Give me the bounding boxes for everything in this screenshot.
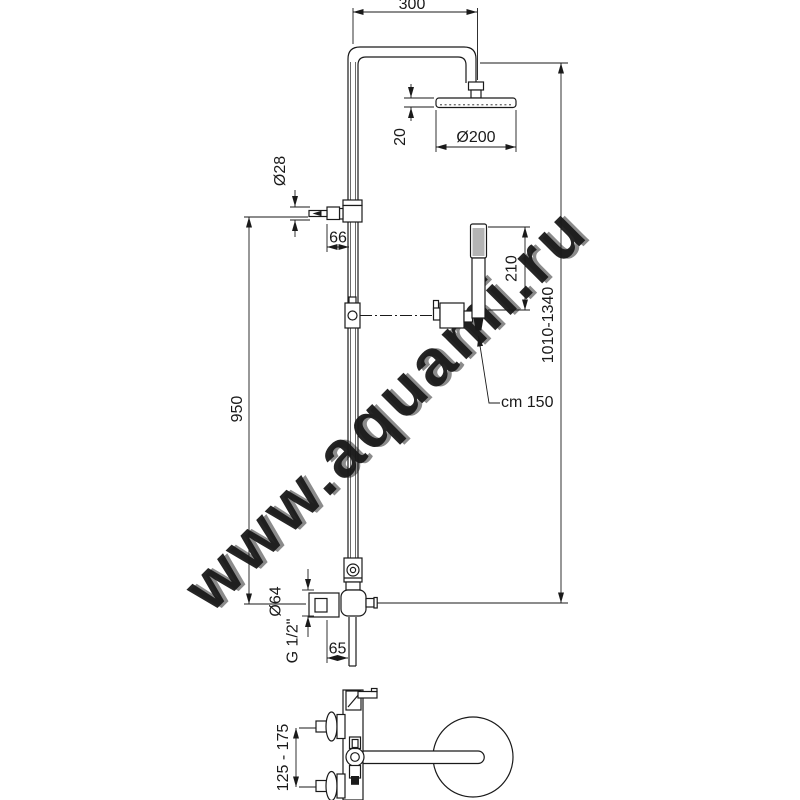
dim-label-210: 210	[504, 255, 521, 282]
dim-label-300: 300	[399, 0, 426, 13]
dim-label-1010-1340: 1010-1340	[540, 287, 557, 364]
head-connector	[469, 82, 484, 98]
dim-label-125-175: 125 - 175	[275, 724, 292, 792]
plan-view	[316, 689, 513, 800]
dim-wall-centers: 125 - 175	[275, 724, 316, 792]
mixer-lever	[346, 689, 377, 711]
dim-head-diameter: Ø200	[436, 110, 516, 152]
handshower-wand	[471, 224, 487, 331]
dim-label-950: 950	[229, 396, 246, 423]
technical-drawing: www.aquami.ru www.aquami.ru	[0, 0, 800, 800]
overhead-shower	[436, 98, 516, 108]
dim-diverter-offset: 66	[327, 224, 349, 252]
diverter-valve	[309, 200, 362, 222]
wall-eccentric-top	[316, 712, 345, 741]
swivel-spout	[363, 751, 484, 764]
dim-outlet-offset: 65	[327, 620, 348, 663]
dim-diverter-diameter: Ø28	[272, 156, 310, 237]
cartridge-mark	[351, 776, 359, 785]
dim-label-d200: Ø200	[456, 129, 495, 146]
dim-label-thread-g12: G 1/2"	[285, 619, 302, 664]
dim-arm-reach: 300	[353, 0, 478, 80]
dim-label-d64: Ø64	[268, 586, 285, 616]
wall-eccentric-bottom	[316, 772, 345, 800]
dim-label-66: 66	[329, 230, 347, 247]
shower-arm	[348, 47, 476, 200]
dim-label-d28: Ø28	[272, 156, 289, 186]
dim-head-thickness: 20	[392, 84, 434, 146]
dim-label-65: 65	[329, 641, 347, 658]
dim-label-cm150: cm 150	[501, 394, 554, 411]
dim-label-20: 20	[392, 128, 409, 146]
